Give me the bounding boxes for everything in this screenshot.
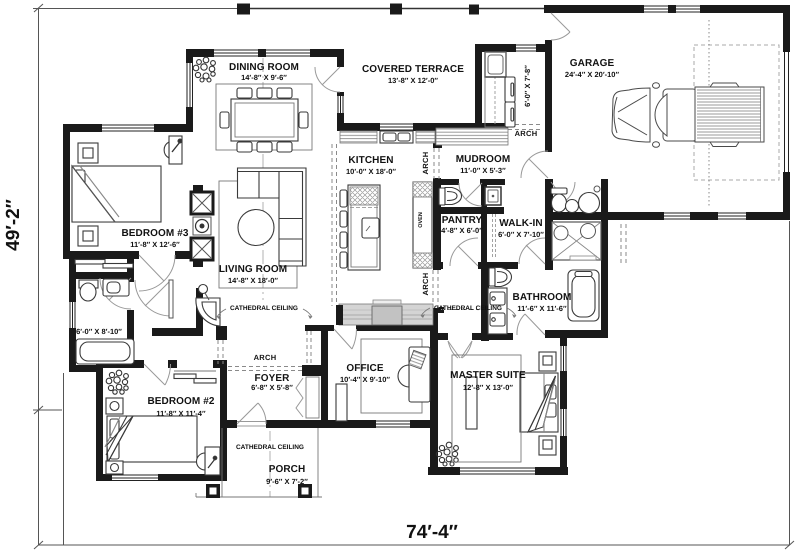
svg-text:ARCH: ARCH [421, 152, 430, 175]
svg-text:12′-8″ X 13′-0″: 12′-8″ X 13′-0″ [463, 383, 513, 392]
svg-text:PORCH: PORCH [269, 464, 306, 475]
svg-text:74′-4″: 74′-4″ [406, 522, 458, 543]
svg-text:6′-8″ X 5′-8″: 6′-8″ X 5′-8″ [251, 383, 293, 392]
svg-text:CATHEDRAL CEILING: CATHEDRAL CEILING [236, 444, 304, 451]
svg-text:24′-4″ X 20′-10″: 24′-4″ X 20′-10″ [565, 70, 620, 79]
svg-text:GARAGE: GARAGE [570, 58, 615, 69]
svg-text:6′-0″ X 7′-8″: 6′-0″ X 7′-8″ [523, 65, 532, 107]
svg-text:11′-8″ X 12′-6″: 11′-8″ X 12′-6″ [130, 240, 180, 249]
svg-text:4′-8″ X 6′-0″: 4′-8″ X 6′-0″ [441, 226, 483, 235]
svg-text:BEDROOM #2: BEDROOM #2 [147, 396, 214, 407]
svg-text:CATHEDRAL CEILING: CATHEDRAL CEILING [434, 305, 502, 312]
svg-text:CATHEDRAL CEILING: CATHEDRAL CEILING [230, 305, 298, 312]
svg-text:OVEN: OVEN [418, 212, 424, 228]
svg-text:WALK-IN: WALK-IN [499, 218, 542, 229]
svg-text:11′-6″ X 11′-6″: 11′-6″ X 11′-6″ [517, 304, 567, 313]
svg-text:14′-8″ X 9′-6″: 14′-8″ X 9′-6″ [241, 73, 287, 82]
svg-text:COVERED TERRACE: COVERED TERRACE [362, 64, 464, 75]
svg-text:MASTER SUITE: MASTER SUITE [450, 370, 526, 381]
svg-text:11′-8″ X 11′-4″: 11′-8″ X 11′-4″ [156, 409, 206, 418]
svg-text:ARCH: ARCH [421, 273, 430, 296]
svg-text:49′-2″: 49′-2″ [3, 199, 24, 251]
svg-text:KITCHEN: KITCHEN [348, 155, 393, 166]
svg-text:BATHROOM: BATHROOM [513, 292, 572, 303]
svg-text:BEDROOM #3: BEDROOM #3 [121, 228, 188, 239]
svg-text:11′-0″ X 5′-3″: 11′-0″ X 5′-3″ [460, 166, 506, 175]
svg-text:MUDROOM: MUDROOM [456, 154, 511, 165]
svg-text:9′-6″ X 7′-2″: 9′-6″ X 7′-2″ [266, 477, 308, 486]
svg-text:ARCH: ARCH [515, 129, 538, 138]
svg-text:14′-8″ X 18′-0″: 14′-8″ X 18′-0″ [228, 276, 278, 285]
svg-text:DINING ROOM: DINING ROOM [229, 62, 299, 73]
svg-text:OFFICE: OFFICE [346, 363, 383, 374]
svg-text:13′-8″ X 12′-0″: 13′-8″ X 12′-0″ [388, 76, 438, 85]
svg-text:PANTRY: PANTRY [442, 215, 483, 226]
svg-text:10′-0″ X 18′-0″: 10′-0″ X 18′-0″ [346, 167, 396, 176]
svg-text:ARCH: ARCH [254, 353, 277, 362]
svg-text:6′-0″ X 7′-10″: 6′-0″ X 7′-10″ [498, 230, 544, 239]
svg-text:LIVING ROOM: LIVING ROOM [219, 264, 287, 275]
svg-text:6′-0″ X 8′-10″: 6′-0″ X 8′-10″ [76, 327, 122, 336]
svg-text:10′-4″ X 9′-10″: 10′-4″ X 9′-10″ [340, 375, 390, 384]
